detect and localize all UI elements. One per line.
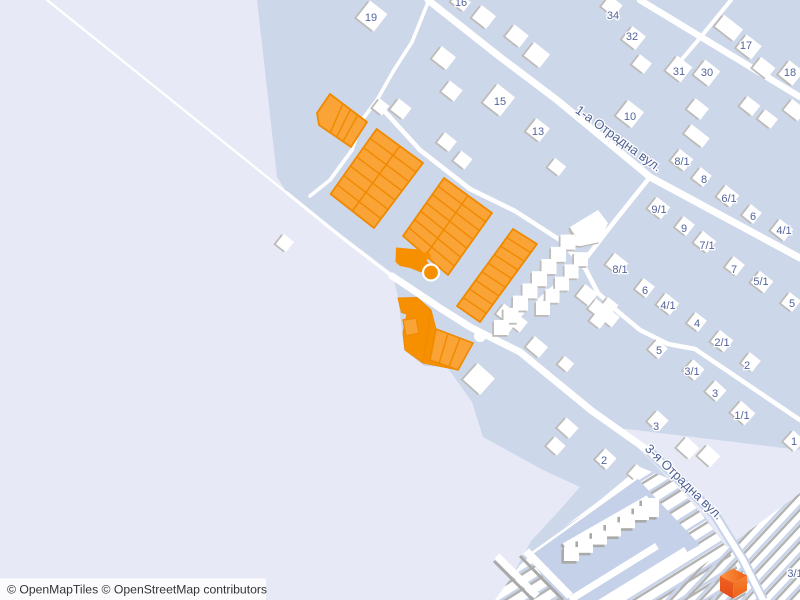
svg-text:7: 7 [731, 264, 737, 276]
svg-text:8/1: 8/1 [674, 156, 689, 168]
svg-text:5: 5 [789, 298, 795, 310]
svg-text:6: 6 [750, 211, 756, 223]
svg-text:2: 2 [601, 455, 607, 467]
svg-text:2: 2 [744, 360, 750, 372]
svg-text:17: 17 [740, 40, 752, 52]
svg-text:© OpenMapTiles © OpenStreetMap: © OpenMapTiles © OpenStreetMap contribut… [7, 583, 267, 597]
svg-text:5/1: 5/1 [753, 276, 768, 288]
svg-text:34: 34 [607, 10, 619, 22]
svg-text:2/1: 2/1 [714, 337, 729, 349]
svg-text:30: 30 [701, 67, 713, 79]
svg-text:19: 19 [365, 12, 377, 24]
svg-text:3: 3 [712, 388, 718, 400]
svg-text:31: 31 [673, 66, 685, 78]
svg-text:3: 3 [653, 421, 659, 433]
svg-text:1: 1 [791, 436, 797, 448]
svg-text:3/1: 3/1 [787, 568, 800, 580]
svg-text:1/1: 1/1 [734, 410, 749, 422]
svg-text:10: 10 [624, 111, 636, 123]
svg-text:9/1: 9/1 [651, 204, 666, 216]
svg-text:4: 4 [694, 318, 700, 330]
svg-text:6: 6 [642, 285, 648, 297]
svg-text:5: 5 [656, 345, 662, 357]
svg-text:16: 16 [455, 0, 467, 9]
svg-text:8: 8 [701, 174, 707, 186]
svg-text:7/1: 7/1 [699, 240, 714, 252]
svg-text:4/1: 4/1 [660, 300, 675, 312]
svg-text:18: 18 [784, 67, 796, 79]
svg-text:15: 15 [494, 96, 506, 108]
svg-text:6/1: 6/1 [721, 193, 736, 205]
svg-text:32: 32 [626, 31, 638, 43]
svg-text:8/1: 8/1 [612, 264, 627, 276]
svg-text:3/1: 3/1 [684, 366, 699, 378]
svg-text:4/1: 4/1 [776, 225, 791, 237]
svg-text:13: 13 [532, 126, 544, 138]
svg-text:9: 9 [681, 223, 687, 235]
